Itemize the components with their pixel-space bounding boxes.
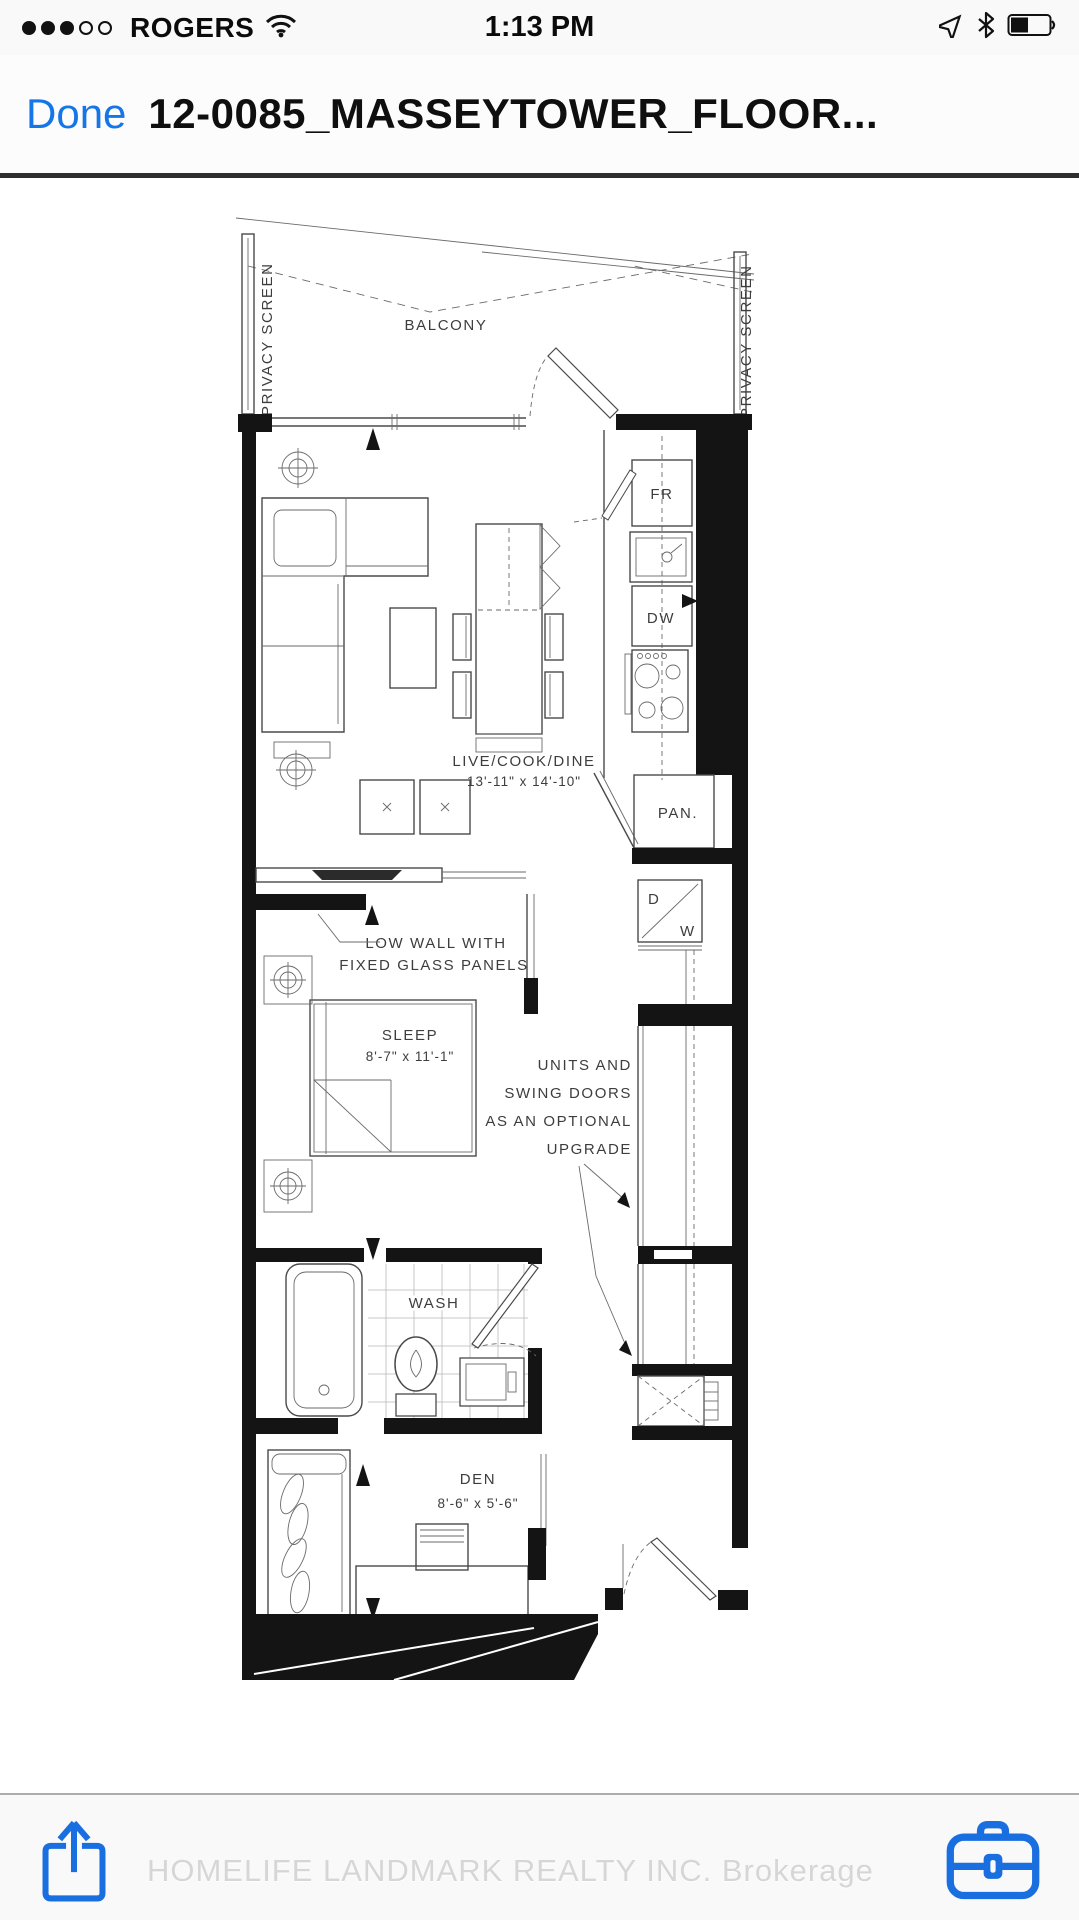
entry-door bbox=[605, 1538, 748, 1610]
low-wall-note-line: FIXED GLASS PANELS bbox=[339, 957, 528, 974]
balcony-area: PRIVACY SCREEN PRIVACY SCREEN BALCONY bbox=[236, 218, 755, 418]
bath-door-leaf bbox=[472, 1264, 538, 1348]
ottoman bbox=[360, 780, 414, 834]
bottom-wall bbox=[242, 1614, 598, 1680]
mechanical-shaft bbox=[632, 1364, 732, 1440]
status-left: ROGERS bbox=[22, 12, 298, 44]
privacy-screen-left-label: PRIVACY SCREEN bbox=[259, 262, 276, 416]
tv bbox=[312, 870, 402, 880]
units-note-line: AS AN OPTIONAL bbox=[485, 1113, 632, 1130]
status-bar: ROGERS 1:13 PM bbox=[0, 0, 1079, 55]
location-arrow-icon bbox=[939, 12, 965, 43]
status-right bbox=[939, 11, 1057, 44]
kitchen-side-wall bbox=[696, 430, 748, 775]
bed bbox=[310, 1000, 476, 1156]
ceiling-light-icon bbox=[276, 750, 316, 790]
den-label: DEN bbox=[460, 1471, 496, 1488]
wash-label: WASH bbox=[409, 1295, 460, 1312]
opening-arrow bbox=[365, 905, 379, 925]
exterior-top-wall bbox=[238, 348, 752, 450]
bluetooth-icon bbox=[975, 11, 997, 44]
dishwasher-label: DW bbox=[647, 610, 675, 627]
balcony-door-leaf bbox=[548, 348, 618, 418]
opening-arrow bbox=[366, 428, 380, 450]
live-cook-dine-label: LIVE/COOK/DINE bbox=[452, 753, 595, 770]
units-note-line: UNITS AND bbox=[538, 1057, 632, 1074]
sleep-label: SLEEP bbox=[382, 1027, 438, 1044]
brokerage-watermark: HOMELIFE LANDMARK REALTY INC. Brokerage bbox=[147, 1853, 874, 1889]
signal-dot bbox=[98, 21, 112, 35]
bathtub bbox=[286, 1264, 362, 1416]
balcony-label: BALCONY bbox=[405, 317, 488, 334]
coffee-table bbox=[390, 608, 436, 688]
den-area: DEN 8'-6" x 5'-6" bbox=[268, 1450, 546, 1620]
washer-label: W bbox=[680, 923, 696, 940]
dining-chair bbox=[545, 672, 563, 718]
opening-arrow bbox=[682, 594, 698, 608]
nightstand-light-icon bbox=[264, 956, 312, 1004]
opening-arrow bbox=[356, 1464, 370, 1486]
pantry-label: PAN. bbox=[658, 805, 698, 822]
nav-bar: Done 12-0085_MASSEYTOWER_FLOOR... bbox=[0, 55, 1079, 178]
nightstand-light-icon bbox=[264, 1160, 312, 1212]
sectional-sofa bbox=[262, 498, 428, 732]
signal-dot bbox=[60, 21, 74, 35]
den-shelf bbox=[268, 1450, 350, 1616]
desk bbox=[356, 1566, 528, 1616]
iphone-screen: ROGERS 1:13 PM bbox=[0, 0, 1079, 1920]
den-dimensions: 8'-6" x 5'-6" bbox=[437, 1496, 518, 1511]
cellular-signal-dots-icon bbox=[22, 21, 112, 35]
pdf-preview-area[interactable]: PRIVACY SCREEN PRIVACY SCREEN BALCONY bbox=[0, 183, 1079, 1920]
document-title: 12-0085_MASSEYTOWER_FLOOR... bbox=[148, 90, 878, 138]
bedroom-area: SLEEP 8'-7" x 11'-1" bbox=[256, 868, 538, 1212]
bathroom-area: WASH bbox=[256, 1238, 542, 1434]
privacy-screen-right-label: PRIVACY SCREEN bbox=[738, 264, 755, 418]
ottoman bbox=[420, 780, 470, 834]
desk-chair bbox=[416, 1524, 468, 1570]
bottom-toolbar: HOMELIFE LANDMARK REALTY INC. Brokerage bbox=[0, 1793, 1079, 1920]
dining-chair bbox=[545, 614, 563, 660]
signal-dot bbox=[22, 21, 36, 35]
signal-dot bbox=[79, 21, 93, 35]
dryer-label: D bbox=[648, 891, 660, 908]
pantry-area: PAN. bbox=[594, 771, 732, 864]
stove bbox=[625, 650, 688, 732]
balcony-door-swing-arc bbox=[530, 354, 550, 416]
opening-arrow bbox=[366, 1238, 380, 1260]
floor-plan-drawing: PRIVACY SCREEN PRIVACY SCREEN BALCONY bbox=[234, 168, 758, 1798]
share-button[interactable] bbox=[38, 1813, 110, 1910]
toilet bbox=[395, 1337, 437, 1416]
ceiling-light-icon bbox=[278, 448, 318, 488]
dining-chair bbox=[453, 672, 471, 718]
fridge-label: FR bbox=[650, 486, 673, 503]
low-wall-note-line: LOW WALL WITH bbox=[365, 935, 506, 952]
bath-door-swing-arc bbox=[474, 1344, 536, 1357]
dining-chair bbox=[453, 614, 471, 660]
signal-dot bbox=[41, 21, 55, 35]
units-note-line: SWING DOORS bbox=[504, 1085, 632, 1102]
battery-icon bbox=[1007, 13, 1057, 42]
living-dining-area: LIVE/COOK/DINE 13'-11" x 14'-10" bbox=[262, 448, 596, 834]
wifi-icon bbox=[264, 12, 298, 43]
done-button[interactable]: Done bbox=[26, 90, 126, 138]
carrier-label: ROGERS bbox=[130, 12, 254, 44]
toolbox-button[interactable] bbox=[943, 1813, 1043, 1908]
sleep-dimensions: 8'-7" x 11'-1" bbox=[366, 1049, 455, 1064]
laundry-closet: D W bbox=[638, 880, 702, 1004]
live-cook-dine-dimensions: 13'-11" x 14'-10" bbox=[467, 774, 581, 789]
kitchen-sink bbox=[630, 532, 692, 582]
door-leaf bbox=[602, 470, 636, 520]
exterior-left-wall bbox=[242, 414, 256, 1624]
units-note-line: UPGRADE bbox=[547, 1141, 632, 1158]
kitchen-area: FR DW bbox=[574, 430, 748, 780]
vanity-sink bbox=[460, 1358, 524, 1406]
